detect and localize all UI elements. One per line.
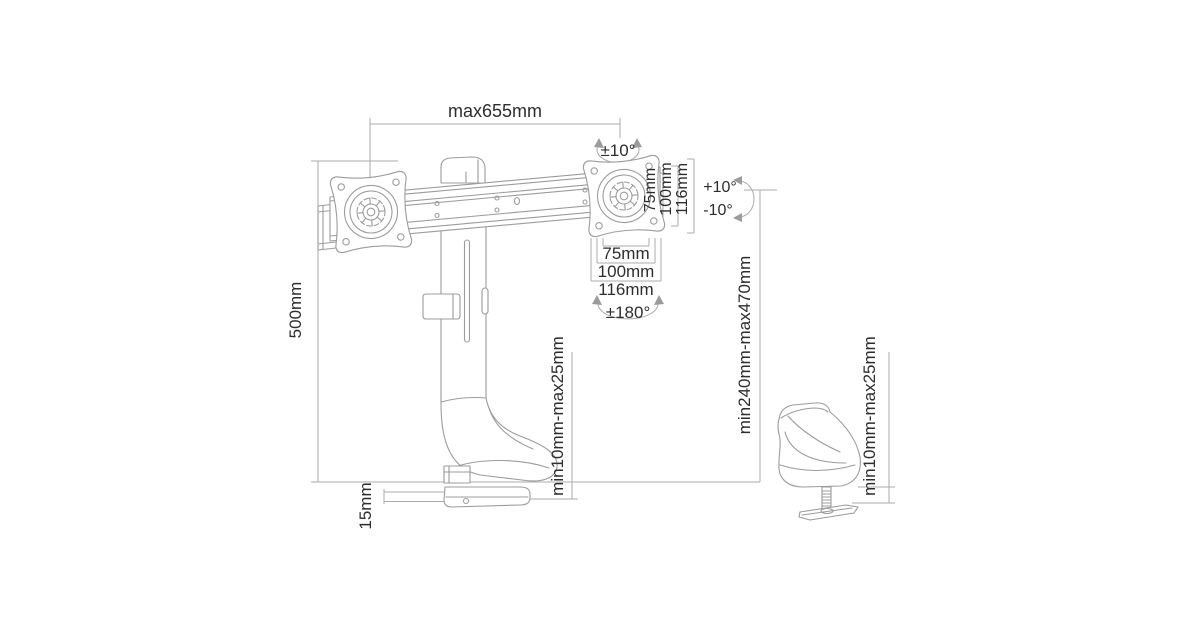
label-vesa-v-100: 100mm xyxy=(658,162,675,215)
label-height-range: min240mm-max470mm xyxy=(735,256,754,435)
label-vesa-h-100: 100mm xyxy=(598,262,655,281)
technical-drawing-canvas: max655mm ±10° 75mm 100mm 116mm +10° -10°… xyxy=(0,0,1200,630)
label-tilt-up: +10° xyxy=(703,179,737,196)
label-vesa-h-75: 75mm xyxy=(602,244,649,263)
label-clamp-plate-thickness: 15mm xyxy=(356,482,375,529)
grommet-mount xyxy=(778,403,860,520)
grommet-foot xyxy=(799,505,858,520)
column-clamp-knob xyxy=(423,294,460,319)
label-tilt-down: -10° xyxy=(703,202,733,219)
dimension-max-width xyxy=(370,118,620,178)
label-grommet-desk-thickness: min10mm-max25mm xyxy=(860,336,879,496)
label-rotation: ±180° xyxy=(606,303,651,322)
label-pole-height: 500mm xyxy=(286,282,305,339)
label-vesa-v-75: 75mm xyxy=(642,168,659,212)
diagram-page: max655mm ±10° 75mm 100mm 116mm +10° -10°… xyxy=(0,0,1200,630)
column xyxy=(423,200,557,481)
label-vesa-h-116: 116mm xyxy=(598,280,653,299)
column-cap xyxy=(441,157,485,183)
vesa-plate-left xyxy=(330,171,412,253)
height-adjust-slot xyxy=(465,240,470,342)
mount-drawing xyxy=(318,155,860,520)
label-vesa-v-116: 116mm xyxy=(674,163,691,215)
side-handle xyxy=(482,288,488,314)
label-clamp-desk-thickness: min10mm-max25mm xyxy=(548,336,567,496)
grommet-bolt xyxy=(822,487,831,509)
label-max-width: max655mm xyxy=(448,101,542,121)
label-swivel: ±10° xyxy=(600,141,635,160)
